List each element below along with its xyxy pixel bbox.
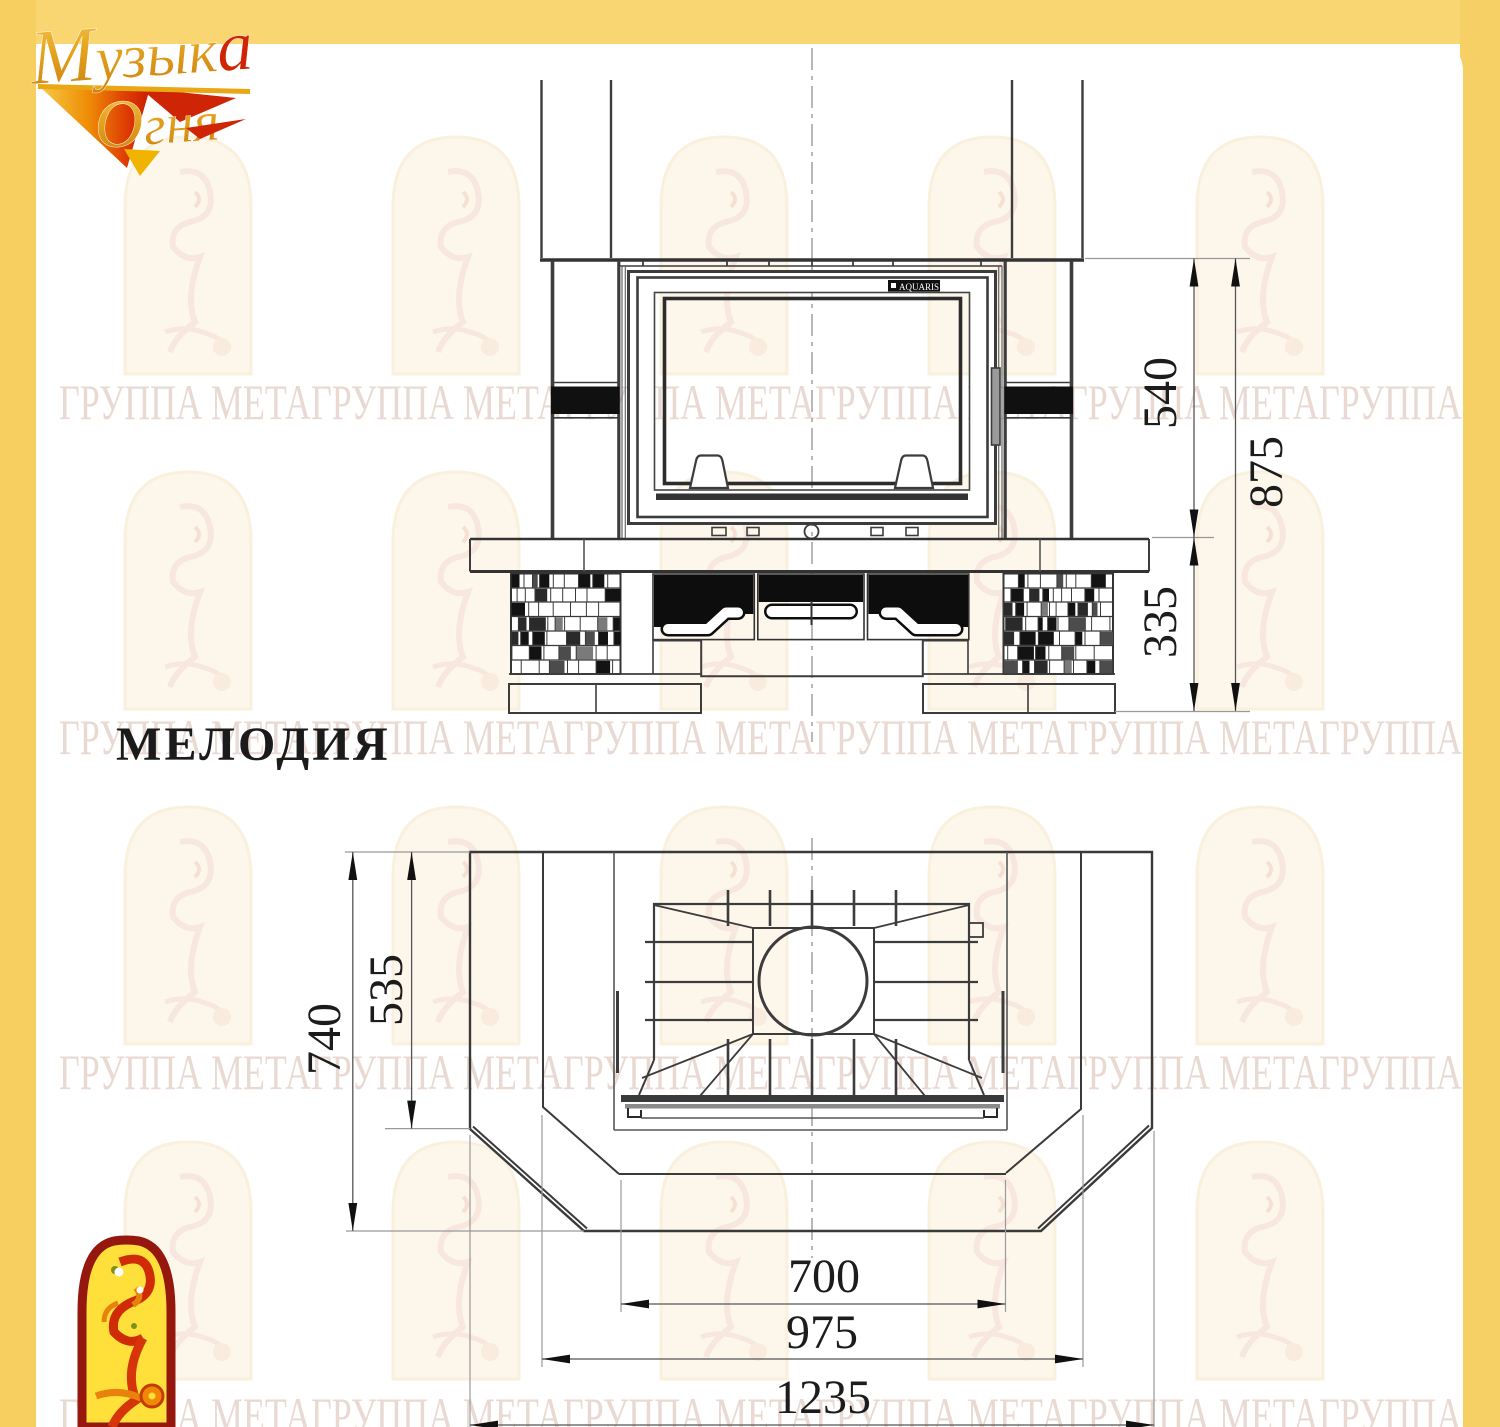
svg-text:ГРУППА МЕТАГРУППА МЕТАГРУППА М: ГРУППА МЕТАГРУППА МЕТАГРУППА МЕТАГРУППА …	[59, 374, 1500, 430]
svg-text:740: 740	[298, 1003, 351, 1075]
svg-text:335: 335	[1134, 586, 1187, 658]
svg-text:700: 700	[788, 1250, 860, 1303]
svg-text:МЕЛОДИЯ: МЕЛОДИЯ	[116, 718, 391, 771]
svg-text:875: 875	[1240, 436, 1293, 508]
svg-text:540: 540	[1134, 357, 1187, 429]
svg-text:1235: 1235	[775, 1371, 871, 1424]
svg-text:ГРУППА МЕТАГРУППА МЕТАГРУППА М: ГРУППА МЕТАГРУППА МЕТАГРУППА МЕТАГРУППА …	[59, 1044, 1500, 1100]
svg-text:535: 535	[360, 954, 413, 1026]
svg-text:AQUARIS: AQUARIS	[899, 282, 939, 292]
svg-text:975: 975	[786, 1306, 858, 1359]
